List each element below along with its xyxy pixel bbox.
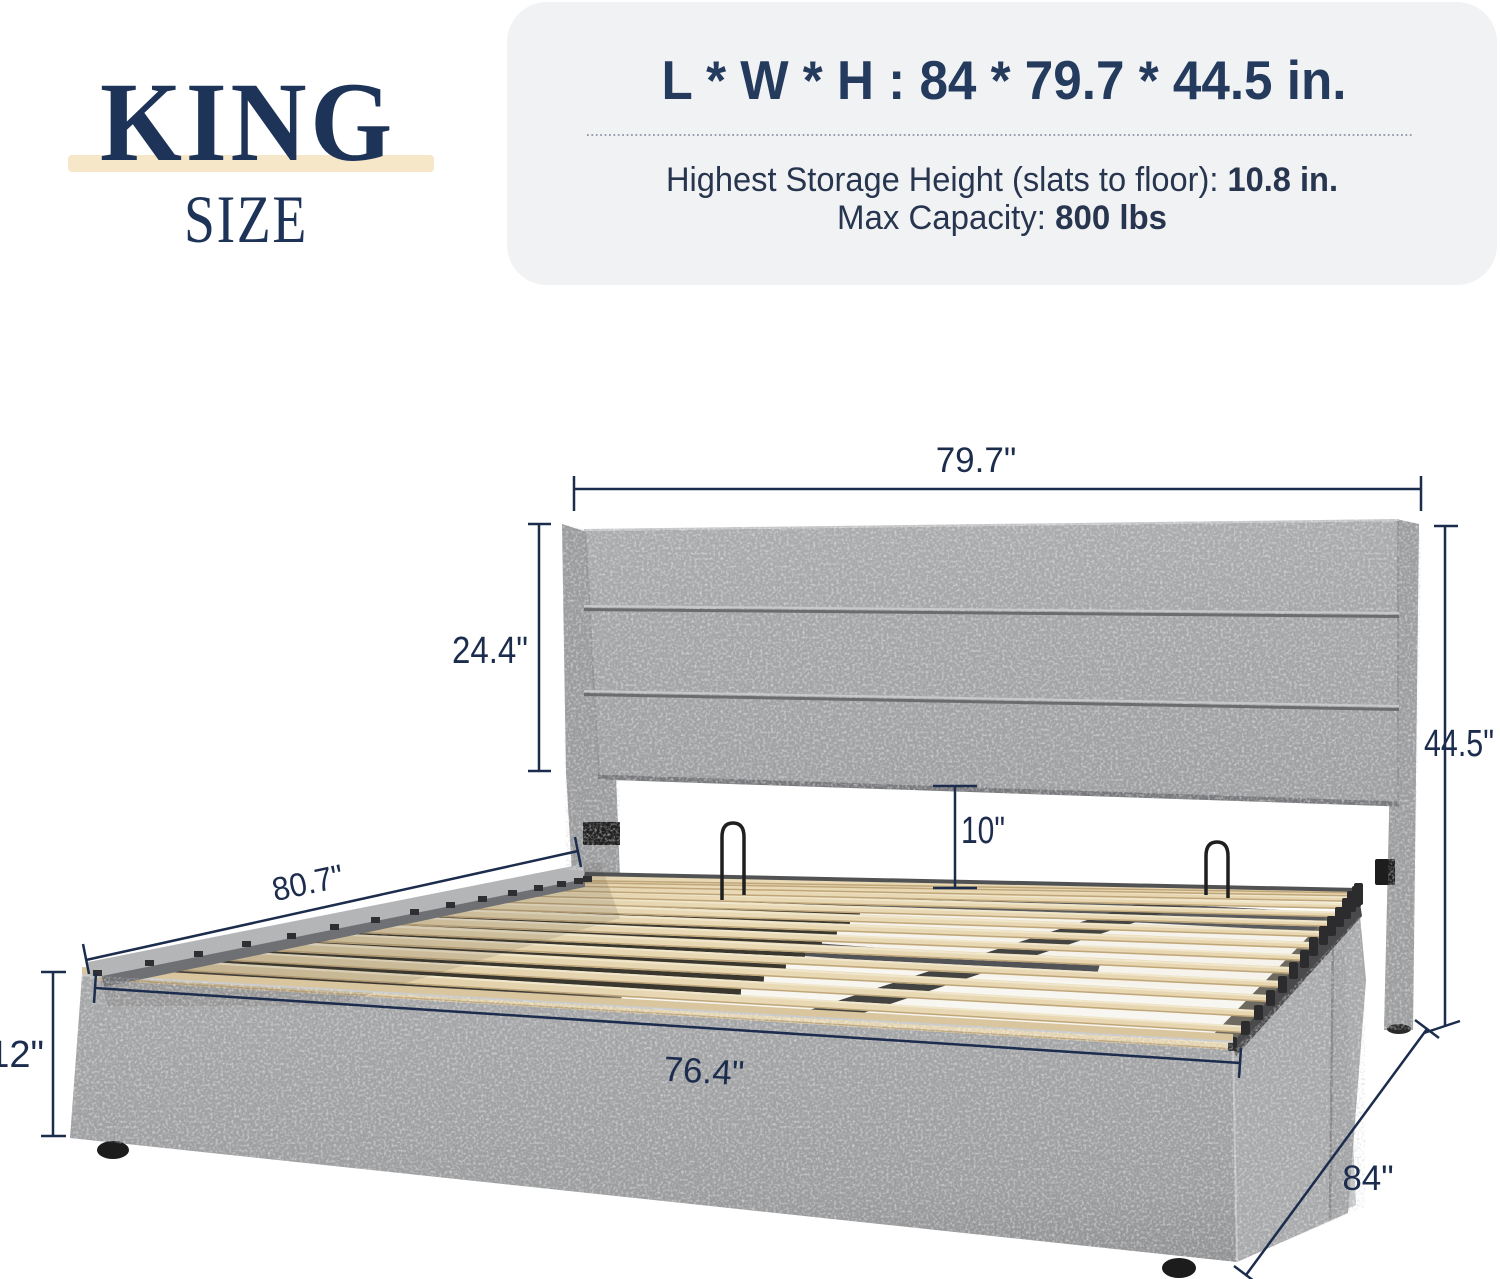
svg-text:KING: KING — [100, 60, 396, 185]
svg-text:24.4": 24.4" — [452, 630, 528, 672]
svg-text:76.4": 76.4" — [663, 1050, 746, 1094]
svg-text:44.5": 44.5" — [1424, 723, 1494, 765]
svg-text:79.7": 79.7" — [936, 441, 1017, 480]
svg-text:Highest Storage Height (slats: Highest Storage Height (slats to floor):… — [666, 161, 1338, 199]
svg-text:10": 10" — [961, 810, 1005, 852]
svg-text:12": 12" — [0, 1034, 44, 1076]
svg-text:Max Capacity: 800 lbs: Max Capacity: 800 lbs — [837, 199, 1167, 237]
svg-text:84": 84" — [1342, 1159, 1393, 1198]
svg-text:L * W * H : 84 * 79.7 * 44.5 i: L * W * H : 84 * 79.7 * 44.5 in. — [662, 49, 1347, 111]
svg-text:SIZE: SIZE — [184, 181, 308, 257]
